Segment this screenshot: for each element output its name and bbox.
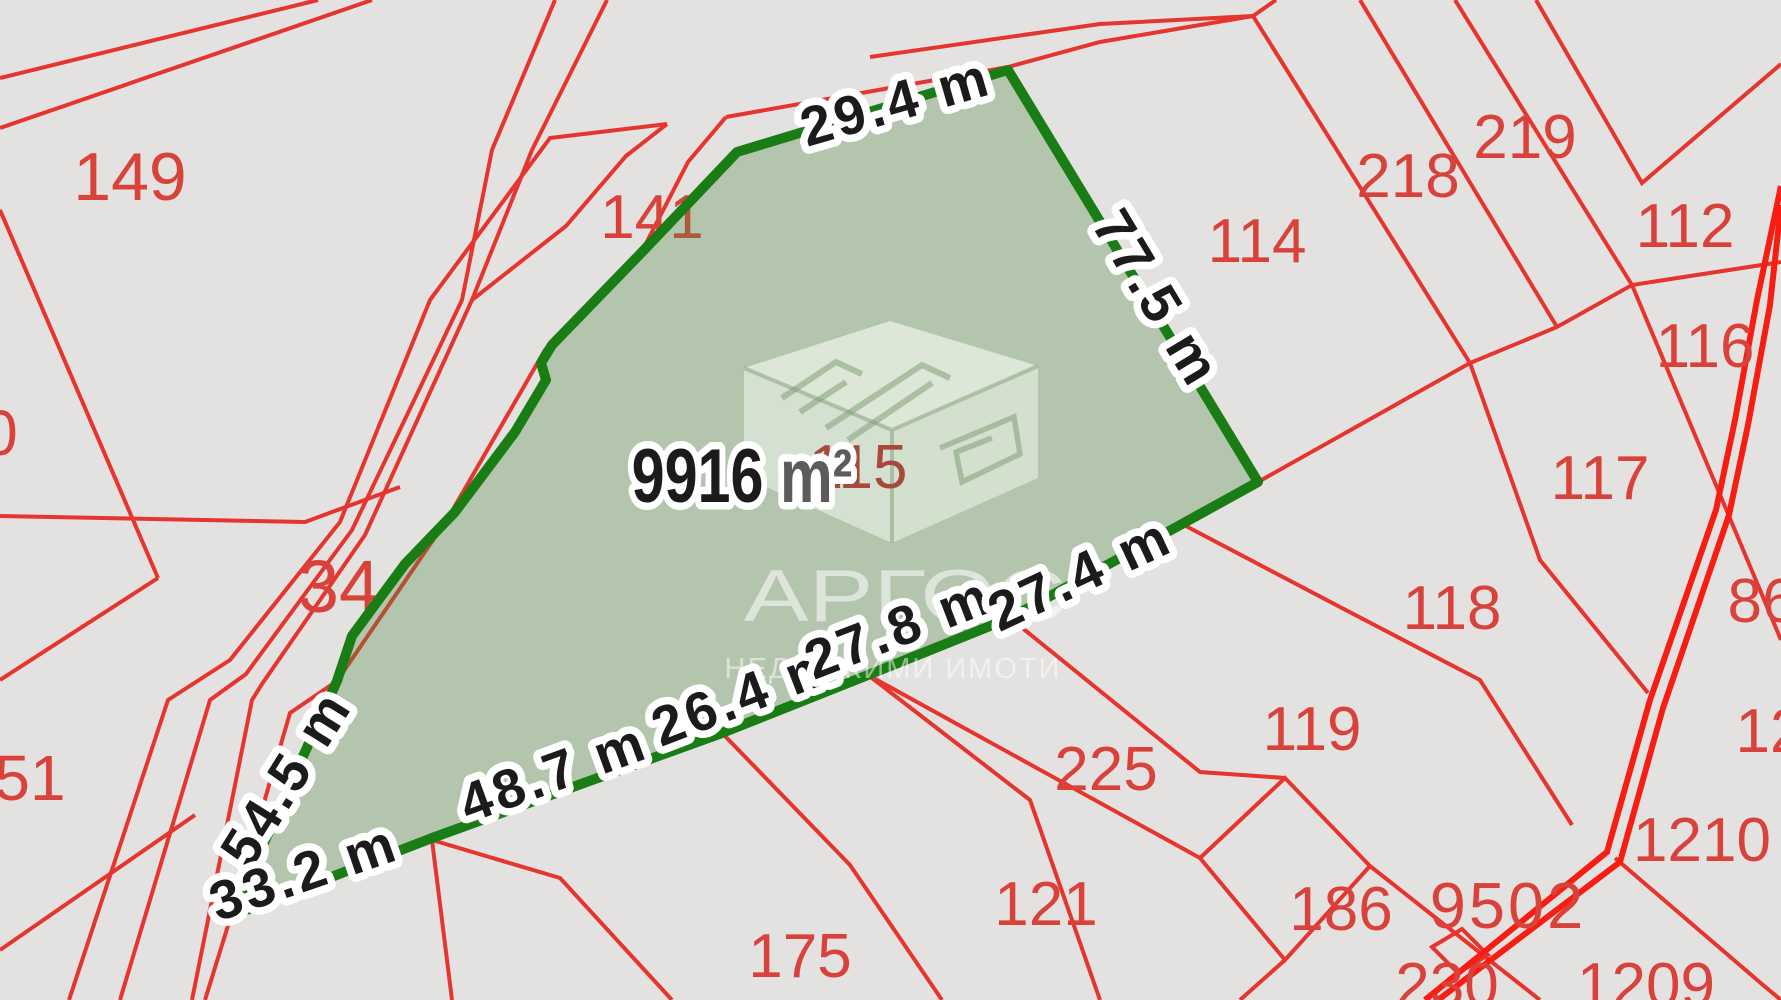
svg-text:118: 118	[1403, 574, 1502, 643]
svg-text:1210: 1210	[1633, 806, 1771, 875]
svg-text:121: 121	[994, 870, 1097, 939]
svg-text:230: 230	[1395, 951, 1498, 1000]
svg-text:51: 51	[0, 742, 66, 814]
svg-text:218: 218	[1356, 142, 1459, 211]
svg-text:175: 175	[748, 922, 851, 991]
svg-text:116: 116	[1656, 312, 1755, 381]
svg-text:119: 119	[1263, 695, 1362, 764]
svg-text:219: 219	[1473, 103, 1576, 172]
svg-text:225: 225	[1054, 735, 1157, 804]
svg-text:186: 186	[1289, 875, 1392, 944]
svg-text:12: 12	[1736, 697, 1781, 766]
svg-text:0: 0	[0, 397, 18, 469]
svg-text:9502: 9502	[1430, 869, 1587, 942]
svg-text:112: 112	[1636, 192, 1735, 261]
svg-text:117: 117	[1551, 444, 1650, 513]
svg-text:1209: 1209	[1577, 951, 1715, 1000]
svg-text:149: 149	[73, 139, 186, 215]
svg-text:114: 114	[1208, 207, 1307, 276]
svg-text:9916 m²: 9916 m²	[632, 434, 853, 519]
svg-text:86: 86	[1728, 567, 1781, 636]
